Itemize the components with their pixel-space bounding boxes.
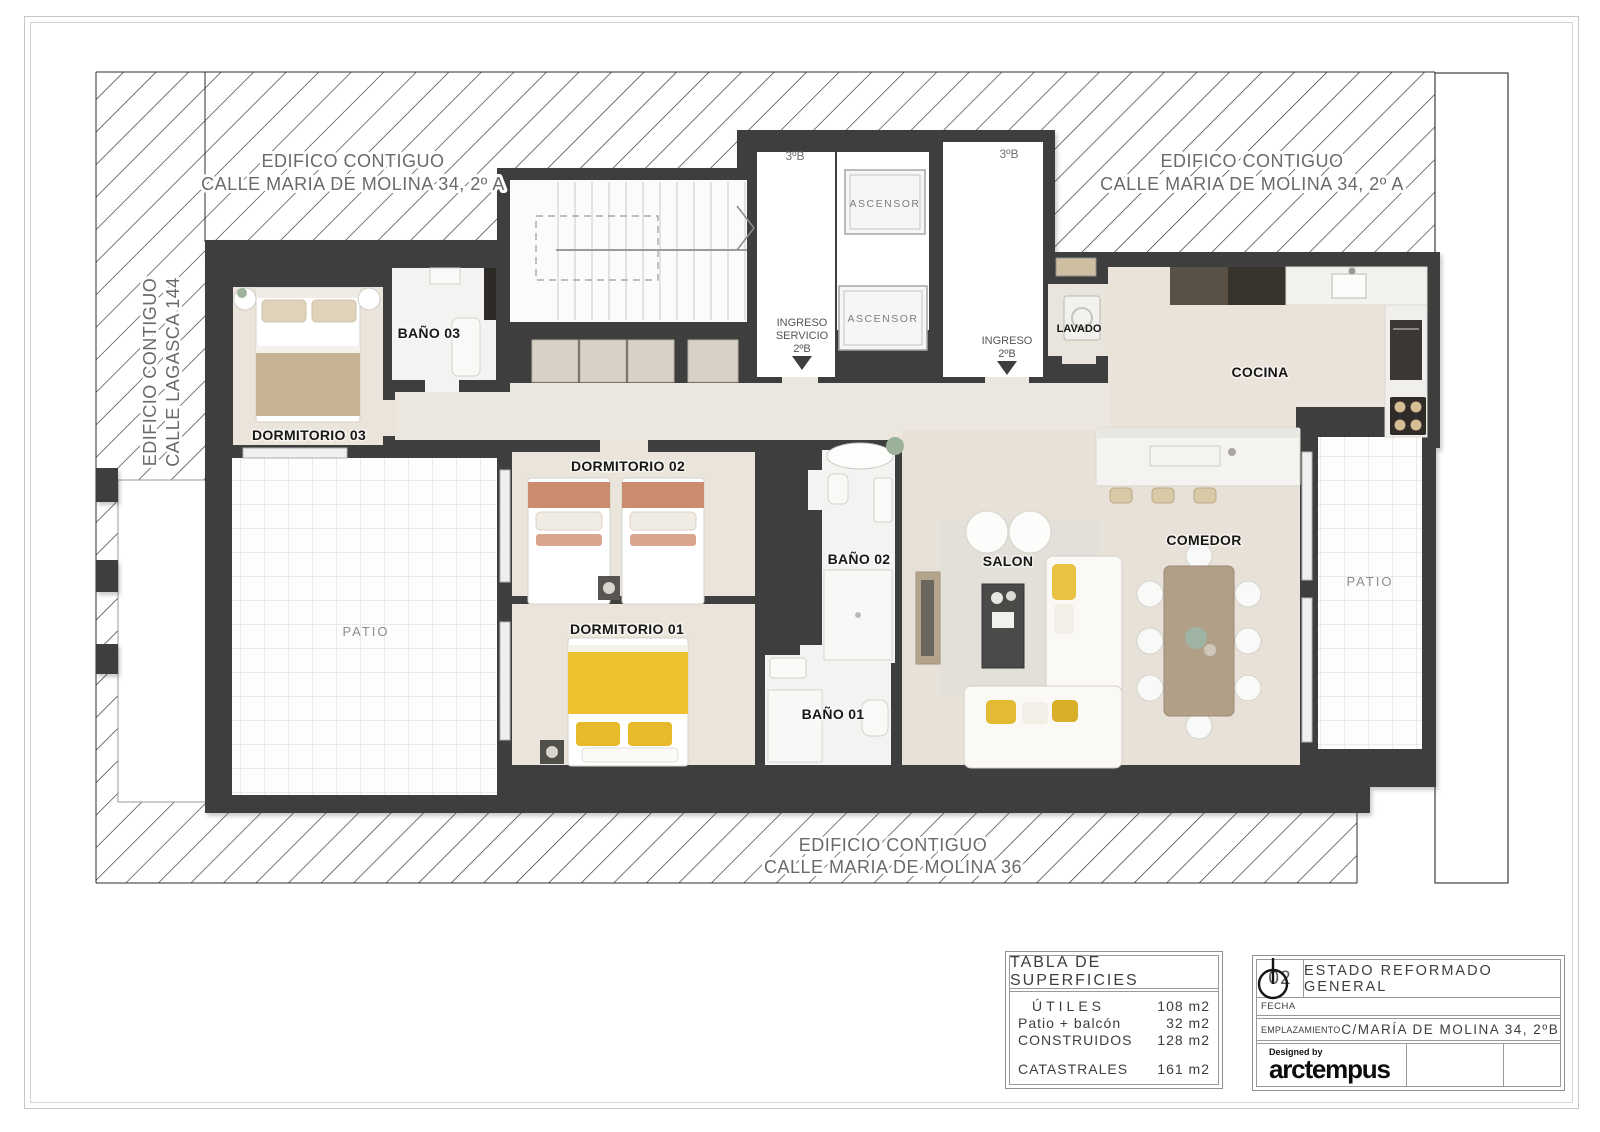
toilet <box>862 700 888 736</box>
service-entry-label: INGRESO <box>777 317 828 329</box>
service-entry-label: SERVICIO <box>776 330 829 342</box>
room-label-bano03: BAÑO 03 <box>398 324 461 341</box>
title-block-footer: Designed by arctempus <box>1257 1043 1560 1086</box>
vent-shaft <box>1056 258 1096 276</box>
window-dormitorio03 <box>243 448 347 458</box>
room-label-dormitorio01: DORMITORIO 01 <box>570 621 684 637</box>
drawing-sheet: EDIFICO CONTIGUO CALLE MARIA DE MOLINA 3… <box>0 0 1600 1132</box>
table-row: Patio + balcón 32 m2 <box>1018 1015 1210 1032</box>
bar-stool <box>1152 488 1174 503</box>
shower <box>768 690 822 762</box>
title-block-header: 02 ESTADO REFORMADO GENERAL <box>1257 960 1560 998</box>
lobby-unit-label: 3ºB <box>999 147 1018 161</box>
emplazamiento-row: EMPLAZAMIENTO C/MARÍA DE MOLINA 34, 2ºB <box>1257 1018 1560 1041</box>
corridor-arm-floor <box>395 392 525 440</box>
pouf <box>966 511 1008 553</box>
neighbor-label: CALLE MARIA DE MOLINA 34, 2º A <box>1100 174 1404 194</box>
neighbor-label: CALLE MARIA DE MOLINA 34, 2º A <box>201 174 505 194</box>
left-lightwell <box>118 480 208 802</box>
neighbor-label: EDIFICO CONTIGUO <box>1161 151 1344 171</box>
room-label-dormitorio02: DORMITORIO 02 <box>571 458 685 474</box>
surface-value: 128 m2 <box>1157 1032 1210 1049</box>
surface-value: 32 m2 <box>1166 1015 1210 1032</box>
window-dormitorio01 <box>500 622 510 740</box>
main-entry-label: 2ºB <box>998 348 1015 360</box>
surfaces-table-title: TABLA DE SUPERFICIES <box>1010 956 1218 989</box>
table-row: ÚTILES 108 m2 <box>1018 998 1210 1015</box>
room-label-bano02: BAÑO 02 <box>828 550 891 567</box>
fecha-row: FECHA <box>1257 998 1560 1016</box>
neighbor-label: EDIFICO CONTIGUO <box>262 151 445 171</box>
room-label-comedor: COMEDOR <box>1166 532 1241 548</box>
kitchen-sink <box>1332 274 1366 298</box>
neighbor-label-vertical: EDIFICIO CONTIGUO <box>140 278 160 467</box>
right-lightwell-strip <box>1435 73 1508 883</box>
window-dormitorio02 <box>500 470 510 582</box>
cooktop <box>1390 397 1426 435</box>
north-arrow-icon <box>1253 956 1293 1000</box>
dormitorio03-bed <box>234 288 380 422</box>
elevator-label: ASCENSOR <box>848 313 919 325</box>
room-label-cocina: COCINA <box>1231 364 1288 380</box>
room-label-salon: SALON <box>983 553 1034 569</box>
table-row: CATASTRALES 161 m2 <box>1018 1061 1210 1078</box>
room-label-dormitorio03: DORMITORIO 03 <box>252 427 366 443</box>
emplazamiento-value: C/MARÍA DE MOLINA 34, 2ºB <box>1340 1022 1560 1037</box>
room-label-bano01: BAÑO 01 <box>802 705 865 722</box>
sofa-seat <box>964 686 1122 768</box>
surface-label: CATASTRALES <box>1018 1061 1128 1078</box>
surfaces-table: TABLA DE SUPERFICIES ÚTILES 108 m2 Patio… <box>1005 951 1223 1089</box>
sink <box>874 478 892 522</box>
brand-wordmark: arctempus <box>1269 1057 1406 1082</box>
elevator-label: ASCENSOR <box>850 198 921 210</box>
sheet-title: ESTADO REFORMADO GENERAL <box>1304 960 1560 997</box>
surface-label: ÚTILES <box>1018 998 1105 1015</box>
sink <box>430 268 460 284</box>
bar-stool <box>1194 488 1216 503</box>
fecha-label: FECHA <box>1261 1001 1296 1012</box>
bathtub <box>827 443 893 469</box>
sink <box>770 658 806 678</box>
service-entry-label: 2ºB <box>793 343 810 355</box>
glass-door-comedor <box>1302 598 1312 742</box>
room-label-patio-left: PATIO <box>342 624 389 639</box>
neighbor-label: CALLE MARIA DE MOLINA 36 <box>764 857 1022 877</box>
surface-value: 161 m2 <box>1157 1061 1210 1078</box>
room-label-patio-right: PATIO <box>1346 574 1393 589</box>
bar-stool <box>1110 488 1132 503</box>
table-row: CONSTRUIDOS 128 m2 <box>1018 1032 1210 1049</box>
corridor-closets <box>532 340 738 382</box>
pouf <box>1009 511 1051 553</box>
surface-label: CONSTRUIDOS <box>1018 1032 1132 1049</box>
neighbor-label-vertical: CALLE LAGASCA 144 <box>163 277 183 467</box>
brand-logo: Designed by arctempus <box>1257 1044 1407 1086</box>
toilet <box>828 474 848 504</box>
emplazamiento-label: EMPLAZAMIENTO <box>1257 1025 1340 1035</box>
room-label-lavado: LAVADO <box>1057 323 1102 335</box>
title-block: 02 ESTADO REFORMADO GENERAL FECHA EMPLAZ… <box>1252 955 1565 1091</box>
title-block-empty-cell <box>1407 1044 1504 1086</box>
main-entry-label: INGRESO <box>982 335 1033 347</box>
lobby-unit-label: 3ºB <box>785 149 804 163</box>
surface-value: 108 m2 <box>1157 998 1210 1015</box>
surface-label: Patio + balcón <box>1018 1015 1121 1032</box>
north-arrow-cell <box>1504 1044 1560 1086</box>
glass-door-salon <box>1302 452 1312 580</box>
neighbor-label: EDIFICIO CONTIGUO <box>799 835 988 855</box>
